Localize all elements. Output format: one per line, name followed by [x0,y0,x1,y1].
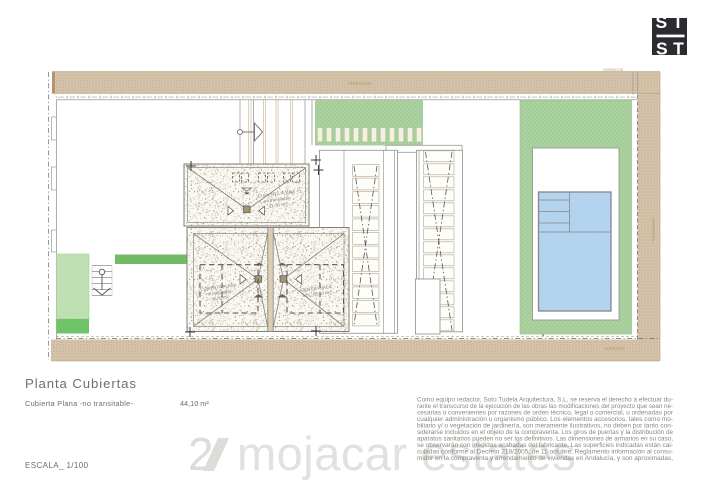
svg-text:rante el transcurso de la ejec: rante el transcurso de la ejecución de l… [417,404,673,410]
svg-text:siderarse incluidos en el obje: siderarse incluidos en el objeto de la c… [417,430,674,436]
svg-text:cualquier administración u org: cualquier administración u organismo púb… [417,417,673,423]
svg-text:HORMIGON: HORMIGON [348,81,372,86]
svg-text:Cubierta Plana -no transitable: Cubierta Plana -no transitable- [25,399,134,408]
svg-text:Planta Cubiertas: Planta Cubiertas [25,376,137,391]
svg-text:midor en la compraventa y arre: midor en la compraventa y arrendamiento … [417,456,673,462]
svg-text:ESCALA_ 1/100: ESCALA_ 1/100 [25,461,89,470]
svg-text:ACERADO: ACERADO [604,346,625,351]
svg-text:culadas conforme al Decreto 21: culadas conforme al Decreto 218/2005, de… [417,449,673,455]
svg-text:2: 2 [188,428,214,480]
svg-text:cesarias o convenientes por ra: cesarias o convenientes por razones de o… [417,410,673,416]
svg-text:Como equipo redactor, Soto Tud: Como equipo redactor, Soto Tudela Arquit… [417,397,673,403]
svg-text:biliario y/ o vegetación de ja: biliario y/ o vegetación de jardinería, … [417,423,673,429]
svg-text:HORMIGON: HORMIGON [651,218,656,242]
svg-text:44,10 m²: 44,10 m² [180,399,209,408]
svg-text:aparatos sanitarios pueden no: aparatos sanitarios pueden no ser los de… [417,436,673,442]
svg-text:se observarán con medidas acab: se observarán con medidas acabadas del f… [417,443,673,449]
